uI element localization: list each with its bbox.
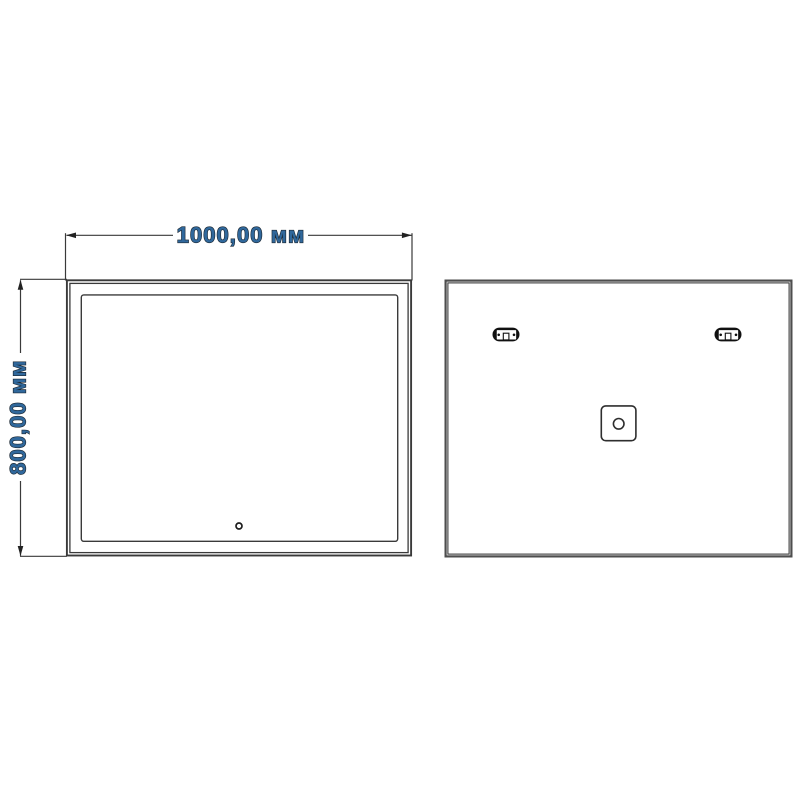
svg-text:800,00 мм: 800,00 мм bbox=[6, 359, 31, 474]
svg-text:1000,00 мм: 1000,00 мм bbox=[177, 223, 306, 248]
